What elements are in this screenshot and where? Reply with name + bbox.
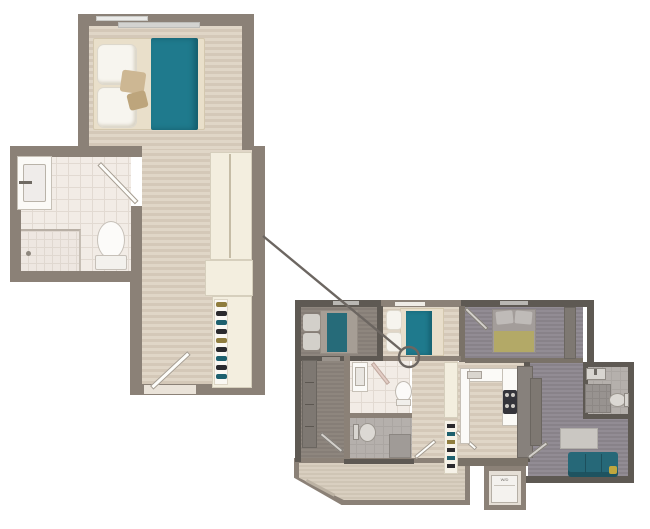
callout-circle — [399, 347, 419, 367]
floor-plan-image: W/D — [0, 0, 650, 529]
callout-line — [263, 236, 401, 350]
callout-overlay — [0, 0, 650, 529]
